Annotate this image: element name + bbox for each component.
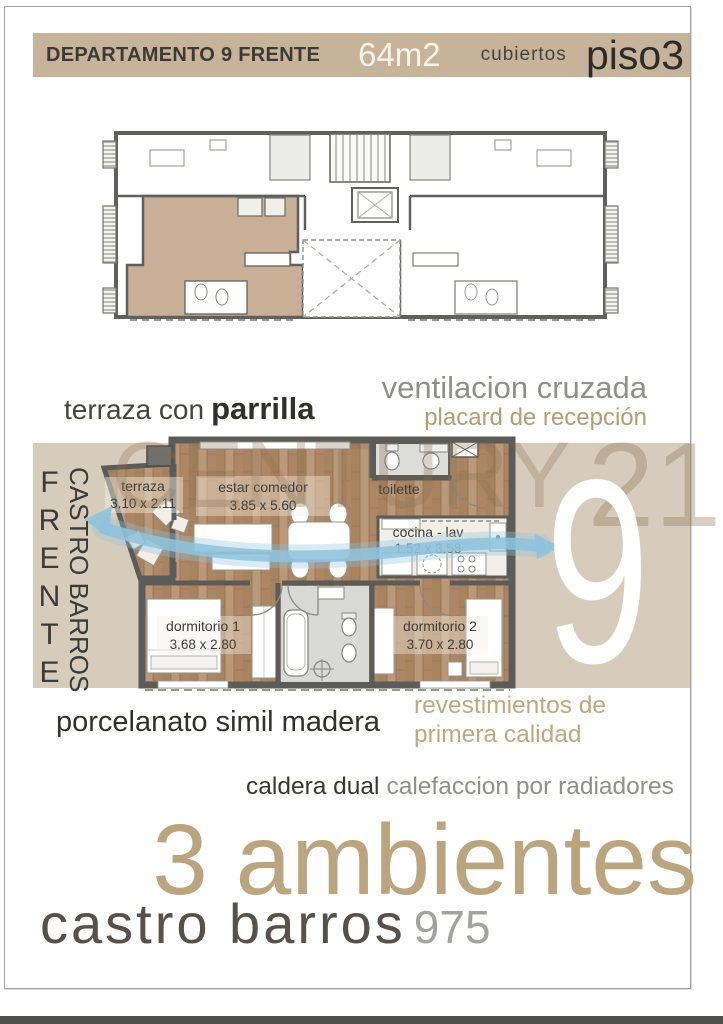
terrace-text: terraza con xyxy=(64,394,204,426)
grill-block xyxy=(147,446,172,466)
room-label-dorm1: dormitorio 1 xyxy=(166,618,240,634)
room-label-terraza: terraza xyxy=(121,478,165,494)
staircase xyxy=(330,134,390,182)
street-name: castro barros xyxy=(40,891,406,956)
unit-number: 9 xyxy=(545,441,650,703)
front-label: FRENTE xyxy=(32,466,66,694)
room-label-estar: estar comedor xyxy=(218,479,308,495)
street-address: castro barros 975 xyxy=(40,891,491,956)
apartment-title: DEPARTAMENTO 9 FRENTE xyxy=(46,44,320,67)
street-number: 975 xyxy=(414,900,491,954)
unit-9-highlight xyxy=(127,196,303,317)
room-dims-dorm1: 3.68 x 2.80 xyxy=(170,637,237,652)
finishes-line-2: primera calidad xyxy=(414,720,606,749)
room-label-toilette: toilette xyxy=(378,481,419,497)
bottom-strip xyxy=(0,1016,723,1024)
cross-ventilation-text: ventilacion cruzada xyxy=(382,370,647,406)
lightwell xyxy=(303,240,400,317)
covered-area-value: 64m2 xyxy=(358,36,441,74)
terrace-feature-line: terraza con parrilla xyxy=(64,391,314,427)
header-bar: DEPARTAMENTO 9 FRENTE 64m2 cubiertos pis… xyxy=(33,33,690,77)
grill-text: parrilla xyxy=(211,391,314,427)
radiators-text: calefaccion por radiadores xyxy=(386,773,673,801)
flyer-page: { "header": { "title": "DEPARTAMENTO 9 F… xyxy=(0,0,723,1024)
building-floor-plan xyxy=(95,105,625,340)
room-dims-dorm2: 3.70 x 2.80 xyxy=(407,637,474,652)
boiler-text: caldera dual xyxy=(246,773,379,801)
covered-area-label: cubiertos xyxy=(481,44,567,66)
flooring-text: porcelanato simil madera xyxy=(56,706,380,739)
elevator xyxy=(352,188,398,222)
floor-label: piso3 xyxy=(586,32,684,79)
heating-feature-line: caldera dual calefaccion por radiadores xyxy=(246,773,674,801)
room-dims-estar: 3.85 x 5.60 xyxy=(230,498,297,513)
room-dims-terraza: 3.10 x 2.11 xyxy=(110,496,176,511)
room-label-dorm2: dormitorio 2 xyxy=(403,618,477,634)
street-name-vertical: CASTRO BARROS xyxy=(63,467,94,695)
